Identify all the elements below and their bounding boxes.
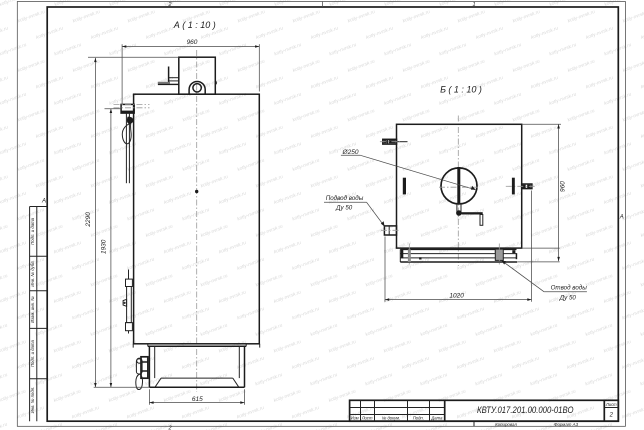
svg-text:960: 960 <box>187 39 198 46</box>
svg-text:1020: 1020 <box>449 293 464 300</box>
svg-text:Инв. № дубл.: Инв. № дубл. <box>30 260 35 286</box>
svg-text:Взам. инв. №: Взам. инв. № <box>30 296 35 323</box>
svg-text:Отвод воды: Отвод воды <box>551 284 588 291</box>
svg-text:Подвод воды: Подвод воды <box>326 195 364 202</box>
svg-text:Формат А3: Формат А3 <box>554 422 579 427</box>
svg-text:615: 615 <box>192 396 203 403</box>
svg-text:Ду 50: Ду 50 <box>335 205 353 212</box>
svg-text:1: 1 <box>472 2 475 8</box>
svg-text:А: А <box>41 199 46 205</box>
svg-text:Ду 50: Ду 50 <box>559 295 577 302</box>
svg-text:КВТУ.017.201.00.000-01ВО: КВТУ.017.201.00.000-01ВО <box>477 405 574 416</box>
svg-text:Дата: Дата <box>430 415 443 420</box>
svg-text:А ( 1 : 10 ): А ( 1 : 10 ) <box>173 20 216 30</box>
svg-text:2: 2 <box>609 413 614 419</box>
svg-text:960: 960 <box>559 181 566 192</box>
svg-text:Подп. и дата: Подп. и дата <box>30 217 35 245</box>
svg-text:А: А <box>619 215 624 221</box>
svg-text:Копировал: Копировал <box>495 422 517 427</box>
svg-text:Лист: Лист <box>605 402 617 407</box>
svg-text:Подп.: Подп. <box>413 415 424 420</box>
svg-text:2: 2 <box>167 425 171 430</box>
svg-text:2: 2 <box>167 2 171 8</box>
svg-text:1930: 1930 <box>100 239 107 254</box>
svg-text:2290: 2290 <box>85 212 92 228</box>
svg-text:Изм: Изм <box>351 415 359 420</box>
svg-text:Подп. и дата: Подп. и дата <box>30 340 35 368</box>
svg-text:№ докум.: № докум. <box>382 415 400 420</box>
svg-text:Инв. № подл.: Инв. № подл. <box>30 387 35 414</box>
svg-text:Лист: Лист <box>361 415 373 420</box>
svg-text:Б ( 1 : 10 ): Б ( 1 : 10 ) <box>440 84 482 94</box>
